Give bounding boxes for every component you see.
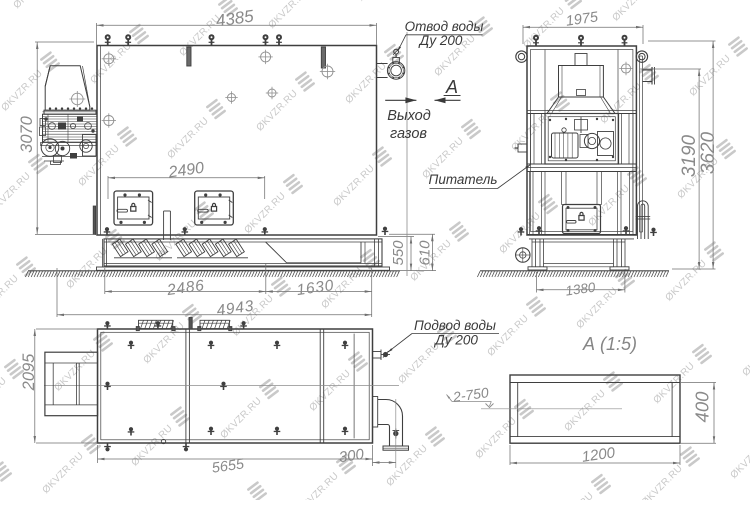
svg-text:А (1:5): А (1:5) <box>582 334 637 354</box>
svg-text:Отвод воды: Отвод воды <box>405 19 484 34</box>
svg-text:400: 400 <box>692 391 713 423</box>
svg-text:2095: 2095 <box>20 353 38 392</box>
svg-text:300: 300 <box>338 446 366 466</box>
svg-text:610: 610 <box>417 240 434 266</box>
svg-text:А: А <box>445 77 458 97</box>
svg-text:газов: газов <box>390 126 427 142</box>
svg-text:3190: 3190 <box>679 134 700 177</box>
svg-text:3620: 3620 <box>698 131 719 174</box>
svg-text:550: 550 <box>390 240 407 266</box>
svg-text:3070: 3070 <box>18 115 36 153</box>
svg-text:Ду 200: Ду 200 <box>433 333 478 348</box>
svg-text:Выход: Выход <box>387 108 431 124</box>
svg-text:Ду 200: Ду 200 <box>418 33 463 48</box>
svg-text:Подвод воды: Подвод воды <box>414 318 496 333</box>
svg-text:Питатель: Питатель <box>429 172 498 187</box>
